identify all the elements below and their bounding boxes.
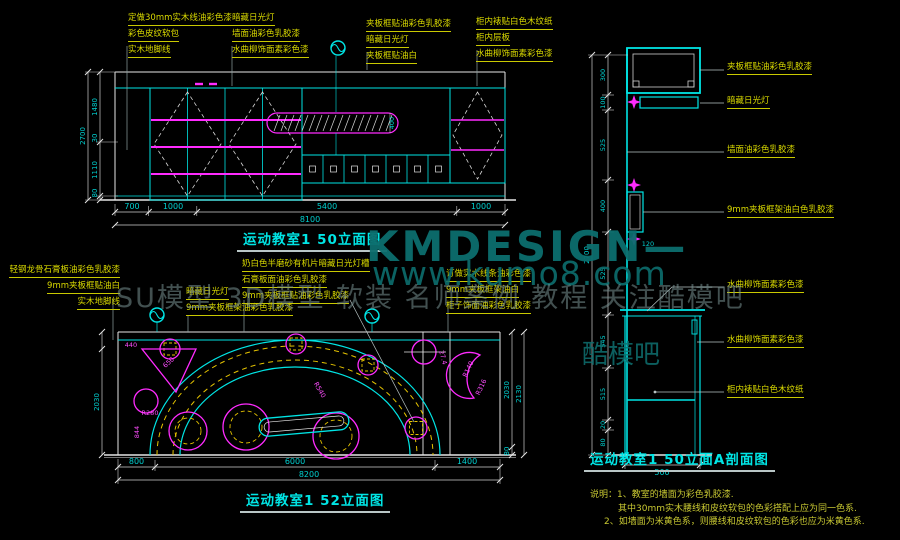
light-star-icon (627, 178, 641, 192)
dim-text-total: 2130 (515, 385, 523, 403)
section-label: 水曲柳饰面素彩色漆 (727, 334, 804, 350)
material-label: 奶白色半磨砂有机片暗藏日光灯槽 (242, 258, 370, 272)
material-label: 9mm夹板框架油白 (446, 284, 519, 298)
dim-text: 120 (642, 240, 654, 248)
label-cluster-bottom-left: 轻钢龙骨石膏板油彩色乳胶漆 9mm夹板框贴油白 实木地脚线 (8, 264, 120, 312)
section-label: 暗藏日光灯 (727, 95, 770, 111)
dim-text: 300 (599, 69, 607, 81)
material-label: 石膏板面油彩色乳胶漆 (242, 274, 327, 288)
material-label: 9mm夹板框架油白色乳胶漆 (727, 204, 834, 218)
material-label: 夹板框贴油彩色乳胶漆 (366, 18, 451, 32)
annotation: R140 (461, 360, 475, 379)
dim-text: 525 (599, 267, 607, 279)
dim-text: 30 (91, 134, 99, 143)
dim-text: 400 (599, 200, 607, 212)
dim-text: 1000 (471, 202, 491, 211)
drawing-title-bottom: 运动教室1 52立面图 (240, 489, 390, 513)
dim-text: 6000 (285, 457, 305, 466)
material-label: 暗藏日光灯 (186, 286, 229, 300)
material-label: 柜子饰面油彩色乳胶漆 (446, 300, 531, 314)
material-label: 夹板框贴油白 (366, 50, 417, 64)
material-label: 彩色皮纹软包 (128, 28, 179, 42)
dim-text: 1000 (163, 202, 183, 211)
light-star-icon (627, 232, 641, 246)
material-label: 9mm夹板框贴油白 (47, 280, 120, 294)
material-label: 暗藏日光灯 (727, 95, 770, 109)
material-label: 实木地脚线 (77, 296, 120, 310)
dim-text: 80 (91, 189, 99, 198)
dim-text: 1480 (91, 98, 99, 116)
dim-text: 2030 (503, 381, 511, 399)
cad-drawing-canvas: 400 700 1000 5400 1000 8100 (0, 0, 900, 540)
material-label: 柜内裱贴白色木纹纸 (727, 384, 804, 398)
material-label: 暗藏日光灯 (232, 12, 275, 26)
lamp-symbol-icon (150, 308, 164, 322)
section-label: 9mm夹板框架油白色乳胶漆 (727, 204, 834, 220)
lamp-symbol-icon (365, 309, 379, 323)
material-label: 轻钢龙骨石膏板油彩色乳胶漆 (9, 264, 120, 278)
annotation: 440 (125, 341, 137, 349)
label-cluster-top-right1: 夹板框贴油彩色乳胶漆 暗藏日光灯 夹板框贴油白 (366, 18, 451, 66)
dim-text-total: 2700 (583, 246, 591, 264)
bottom-elevation-drawing: 440 650 R280 844 R540 R316 R140 27.4 800… (93, 298, 527, 484)
annotation: R316 (474, 378, 488, 397)
dim-text: 2030 (93, 393, 101, 411)
label-cluster-bottom-right: 订做实木线条油彩色漆 9mm夹板框架油白 柜子饰面油彩色乳胶漆 (446, 268, 531, 316)
material-label: 水曲柳饰面素彩色漆 (476, 48, 553, 62)
section-label: 夹板框贴油彩色乳胶漆 (727, 61, 812, 77)
label-cluster-top-right2: 柜内裱贴白色木纹纸 柜内层板 水曲柳饰面素彩色漆 (476, 16, 553, 64)
dim-text: 545 (599, 335, 607, 347)
dim-text: 1110 (91, 161, 99, 179)
drawing-title-top: 运动教室1 50立面图 (237, 228, 387, 252)
notes-block: 说明：1、教室的墙面为彩色乳胶漆. 其中30mm实木腰线和皮纹软包的色彩搭配上应… (590, 489, 865, 530)
dim-text: 20 (599, 421, 607, 429)
material-label: 暗藏日光灯 (366, 34, 409, 48)
dim-strip: 400 (388, 117, 396, 129)
lamp-symbol-icon (331, 41, 345, 55)
section-label: 墙面油彩色乳胶漆 (727, 144, 795, 160)
material-label: 定做30mm实木线油彩色漆 (128, 12, 232, 26)
dim-text-total: 2700 (79, 127, 87, 145)
section-label: 柜内裱贴白色木纹纸 (727, 384, 804, 400)
note-line: 说明：1、教室的墙面为彩色乳胶漆. (590, 489, 865, 503)
material-label: 9mm夹板框贴油彩色乳胶漆 (242, 290, 349, 304)
dim-text: 525 (599, 139, 607, 151)
material-label: 夹板框贴油彩色乳胶漆 (727, 61, 812, 75)
light-star-icon (627, 95, 641, 109)
annotation: R540 (312, 381, 327, 400)
material-label: 水曲柳饰面素彩色漆 (727, 334, 804, 348)
note-line: 2、如墙面为米黄色系，则腰线和皮纹软包的色彩也应为米黄色系. (604, 516, 865, 530)
section-label: 水曲柳饰面素彩色漆 (727, 279, 804, 295)
section-drawing: 120 (583, 48, 724, 477)
annotation: 844 (133, 426, 141, 438)
drawing-title-section: 运动教室1 50立面A剖面图 (584, 448, 775, 472)
dim-text-total: 8200 (299, 470, 319, 479)
dim-text: 1400 (457, 457, 477, 466)
material-label: 实木地脚线 (128, 44, 171, 58)
annotation: 27.4 (437, 349, 448, 365)
dim-text: 80 (599, 438, 607, 446)
annotation: 650 (161, 355, 176, 369)
dim-text-total: 8100 (300, 215, 320, 224)
annotation: R280 (142, 409, 159, 417)
material-label: 水曲柳饰面素彩色漆 (232, 44, 309, 58)
dim-text: 100 (599, 96, 607, 108)
top-elevation-drawing: 400 700 1000 5400 1000 8100 (79, 41, 516, 228)
label-cluster-top-mid: 暗藏日光灯 墙面油彩色乳胶漆 水曲柳饰面素彩色漆 (232, 12, 309, 60)
label-cluster-bottom-top: 奶白色半磨砂有机片暗藏日光灯槽 石膏板面油彩色乳胶漆 9mm夹板框贴油彩色乳胶漆 (242, 258, 370, 306)
material-label: 订做实木线条油彩色漆 (446, 268, 531, 282)
material-label: 水曲柳饰面素彩色漆 (727, 279, 804, 293)
dim-text: 80 (503, 447, 511, 456)
dim-text: 700 (124, 202, 139, 211)
material-label: 墙面油彩色乳胶漆 (232, 28, 300, 42)
material-label: 柜内裱贴白色木纹纸 (476, 16, 553, 30)
dim-text: 515 (599, 388, 607, 400)
material-label: 墙面油彩色乳胶漆 (727, 144, 795, 158)
dim-text: 800 (129, 457, 144, 466)
material-label: 柜内层板 (476, 32, 510, 46)
dim-text: 5400 (317, 202, 337, 211)
label-cluster-top-left: 定做30mm实木线油彩色漆 彩色皮纹软包 实木地脚线 (128, 12, 232, 60)
note-line: 其中30mm实木腰线和皮纹软包的色彩搭配上应为同一色系. (618, 503, 865, 517)
